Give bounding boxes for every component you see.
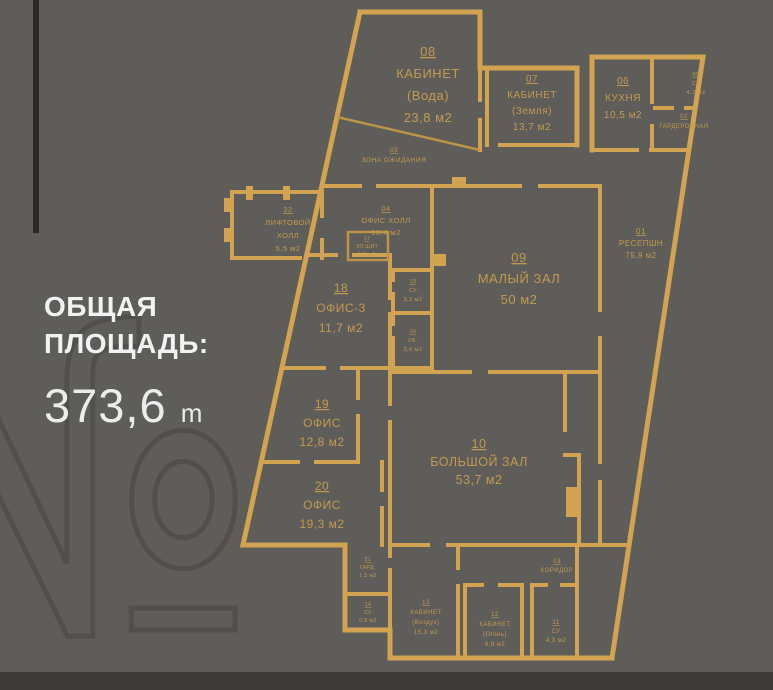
room-number: 06 (617, 76, 629, 87)
room-number: 01 (636, 227, 646, 236)
room-number: 12 (491, 612, 499, 618)
room-number: 02 (680, 114, 688, 120)
room-text: 9,9 м2 (485, 642, 506, 648)
room-number: 19 (315, 397, 329, 411)
room-number: 09 (511, 250, 526, 265)
room-text: 12,8 м2 (299, 435, 344, 449)
room-label-13: 13КАБИНЕТ(Воздух)15,3 м2 (410, 600, 441, 636)
room-text: 4,3 м2 (546, 638, 567, 644)
room-number: 17 (364, 236, 371, 242)
room-label-02: 02ГАРДЕРОБНАЯ (659, 114, 708, 130)
room-label-20: 20ОФИС19,3 м2 (299, 479, 344, 531)
room-number: 03 (553, 559, 561, 565)
room-text: 75,9 м2 (625, 251, 656, 260)
room-text: СУ (552, 629, 561, 635)
room-label-10: 10БОЛЬШОЙ ЗАЛ53,7 м2 (430, 437, 528, 487)
room-label-12: 12КАБИНЕТ(Огонь)9,9 м2 (479, 612, 510, 648)
room-number: 14 (365, 602, 372, 608)
room-label-03: 03ЗОНА ОЖИДАНИЯ (362, 147, 427, 164)
room-number: 03 (390, 147, 398, 154)
room-text: 19,3 м2 (299, 517, 344, 531)
room-text: СУ (364, 610, 372, 616)
room-text: 53,7 м2 (456, 473, 503, 487)
room-label-22: 22ЛИФТОВОЙХОЛЛ5,5 м2 (265, 205, 311, 253)
room-text: МАЛЫЙ ЗАЛ (478, 271, 561, 286)
area-unit: m (181, 398, 203, 428)
room-number: 22 (283, 205, 292, 214)
area-number: 373,6 (44, 379, 167, 432)
room-number: 21 (365, 557, 372, 563)
total-area-heading: ОБЩАЯ ПЛОЩАДЬ: (44, 288, 209, 362)
room-label-18: 18ОФИС-311,7 м2 (316, 281, 365, 335)
room-text: 5,5 м2 (276, 244, 301, 253)
room-text: СУ (692, 81, 700, 87)
room-text: 10,5 м2 (604, 110, 642, 121)
room-number: 05 (692, 72, 699, 78)
room-number: 18 (334, 281, 348, 295)
outer-walls (243, 12, 703, 658)
room-text: 0,8 м2 (359, 618, 377, 624)
room-number: 15 (409, 279, 416, 285)
room-text: 3,6 м2 (403, 347, 422, 353)
room-text: БОЛЬШОЙ ЗАЛ (430, 454, 528, 469)
total-area-panel: ОБЩАЯ ПЛОЩАДЬ: 373,6 m (44, 288, 209, 433)
room-label-01: 01РЕСЕПШН75,9 м2 (619, 227, 663, 260)
room-label-17: 17ЭЛ.ЩИТ1,2 м2 (356, 236, 378, 258)
room-text: КАБИНЕТ (410, 610, 441, 616)
room-number: 16 (409, 329, 416, 335)
room-text: ГАРДЕРОБНАЯ (659, 124, 708, 130)
room-text: РЕСЕПШН (619, 239, 663, 248)
room-text: КАБИНЕТ (507, 90, 557, 101)
room-text: УБ. (408, 338, 418, 344)
decor-vertical-line (33, 0, 39, 233)
room-text: СУ (409, 288, 417, 294)
room-text: ОФИС ХОЛЛ (361, 216, 410, 225)
room-label-11: 11СУ4,3 м2 (546, 620, 567, 644)
room-number: 13 (422, 600, 430, 606)
room-number: 07 (526, 74, 538, 85)
room-text: КАБИНЕТ (396, 66, 460, 81)
room-text: ЛИФТОВОЙ (265, 218, 311, 227)
room-label-15: 15СУ3,2 м2 (403, 279, 422, 303)
room-text: 3,2 м2 (403, 297, 422, 303)
room-text: 4,2 м2 (686, 90, 705, 96)
room-text: ХОЛЛ (277, 231, 299, 240)
room-text: КАБИНЕТ (479, 622, 510, 628)
room-text: 23,8 м2 (404, 110, 453, 125)
total-area-value: 373,6 m (44, 378, 209, 433)
room-text: ОФИС (303, 498, 341, 512)
room-label-08: 08КАБИНЕТ(Вода)23,8 м2 (396, 44, 460, 125)
room-text: (Воздух) (412, 620, 439, 626)
bottom-strip (0, 672, 773, 690)
room-text: ОФИС (303, 416, 341, 430)
room-text: 18,4 м2 (371, 228, 401, 237)
room-text: 50 м2 (501, 292, 538, 307)
heading-line1: ОБЩАЯ (44, 291, 157, 322)
room-label-07: 07КАБИНЕТ(Земля)13,7 м2 (507, 74, 557, 133)
room-label-16: 16УБ.3,6 м2 (403, 329, 422, 353)
room-label-06: 06КУХНЯ10,5 м2 (604, 76, 642, 121)
room-text: ОФИС-3 (316, 301, 365, 315)
room-text: 1,5 м2 (359, 573, 377, 579)
room-label-14: 14СУ0,8 м2 (359, 602, 377, 624)
room-text: КУХНЯ (605, 93, 641, 104)
room-label-19: 19ОФИС12,8 м2 (299, 397, 344, 449)
thin-walls (337, 117, 480, 260)
room-text: 11,7 м2 (319, 321, 363, 335)
heading-line2: ПЛОЩАДЬ: (44, 328, 209, 359)
room-label-09: 09МАЛЫЙ ЗАЛ50 м2 (478, 250, 561, 307)
room-number: 08 (420, 44, 435, 59)
room-text: (Земля) (512, 106, 552, 117)
room-text: (Вода) (407, 88, 449, 103)
room-number: 10 (472, 437, 487, 451)
room-text: (Огонь) (483, 632, 507, 638)
room-number: 04 (381, 204, 390, 213)
room-text: 15,3 м2 (414, 630, 438, 636)
room-text: 1,2 м2 (358, 252, 376, 258)
room-text: ГАРД. (360, 565, 376, 571)
room-text: ЗОНА ОЖИДАНИЯ (362, 157, 427, 164)
room-label-21: 21ГАРД.1,5 м2 (359, 557, 377, 579)
room-text: 13,7 м2 (513, 122, 551, 133)
room-text: ЭЛ.ЩИТ (356, 244, 378, 250)
room-label-03: 03КОРИДОР (541, 559, 574, 574)
room-number: 20 (315, 479, 329, 493)
room-text: КОРИДОР (541, 568, 574, 574)
room-number: 11 (552, 620, 559, 626)
